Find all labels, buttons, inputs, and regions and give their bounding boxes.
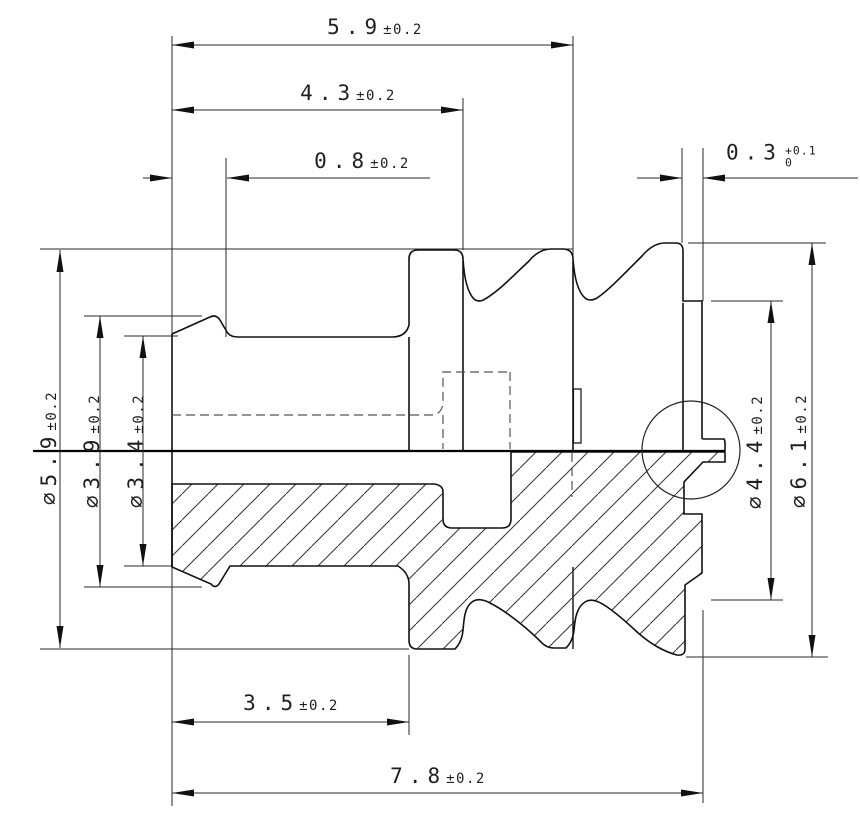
dim-tolerance: ±0.2 — [370, 156, 410, 172]
dim-tolerance: ±0.2 — [794, 394, 810, 434]
dim-value: 0.8 — [314, 149, 370, 173]
dim-value: ∅5.9 — [37, 431, 61, 506]
dim-diameter-3-9: ∅3.9±0.2 — [80, 394, 104, 508]
dim-length-4-3: 4.3±0.2 — [300, 81, 396, 105]
dim-length-0-3: 0.3 +0.1 0 — [726, 140, 817, 173]
dim-value: ∅6.1 — [787, 434, 811, 509]
dim-value: ∅3.4 — [124, 434, 148, 509]
dim-value: 3.5 — [243, 691, 299, 715]
extension-lines — [40, 36, 828, 806]
dim-tolerance-stack: +0.1 0 — [785, 144, 817, 168]
dim-value: 7.8 — [390, 764, 446, 788]
dim-diameter-4-4: ∅4.4±0.2 — [743, 395, 767, 509]
section-cut — [172, 452, 725, 655]
dim-tolerance: ±0.2 — [446, 771, 486, 787]
dim-tolerance: ±0.2 — [44, 391, 60, 431]
technical-drawing-sheet: 5.9±0.2 4.3±0.2 0.8±0.2 0.3 +0.1 0 3.5±0… — [0, 0, 860, 830]
dim-tolerance: ±0.2 — [87, 394, 103, 434]
dim-diameter-6-1: ∅6.1±0.2 — [787, 394, 811, 508]
dim-value: 4.3 — [300, 81, 356, 105]
dim-length-7-8: 7.8±0.2 — [390, 764, 486, 788]
dim-diameter-3-4: ∅3.4±0.2 — [124, 394, 148, 508]
dim-tolerance: ±0.2 — [383, 22, 423, 38]
dim-value: ∅3.9 — [80, 434, 104, 509]
section-hatch-area — [172, 452, 725, 655]
dim-value: 5.9 — [327, 15, 383, 39]
dim-length-0-8: 0.8±0.2 — [314, 149, 410, 173]
dim-tolerance: ±0.2 — [131, 394, 147, 434]
dim-tolerance: ±0.2 — [299, 698, 339, 714]
dim-value: 0.3 — [726, 140, 782, 164]
dim-tolerance: ±0.2 — [356, 88, 396, 104]
dim-diameter-5-9: ∅5.9±0.2 — [37, 391, 61, 505]
dim-value: ∅4.4 — [743, 435, 767, 510]
dim-tolerance-lower: 0 — [785, 157, 817, 169]
dim-length-5-9: 5.9±0.2 — [327, 15, 423, 39]
dim-length-3-5: 3.5±0.2 — [243, 691, 339, 715]
dim-tolerance: ±0.2 — [750, 395, 766, 435]
